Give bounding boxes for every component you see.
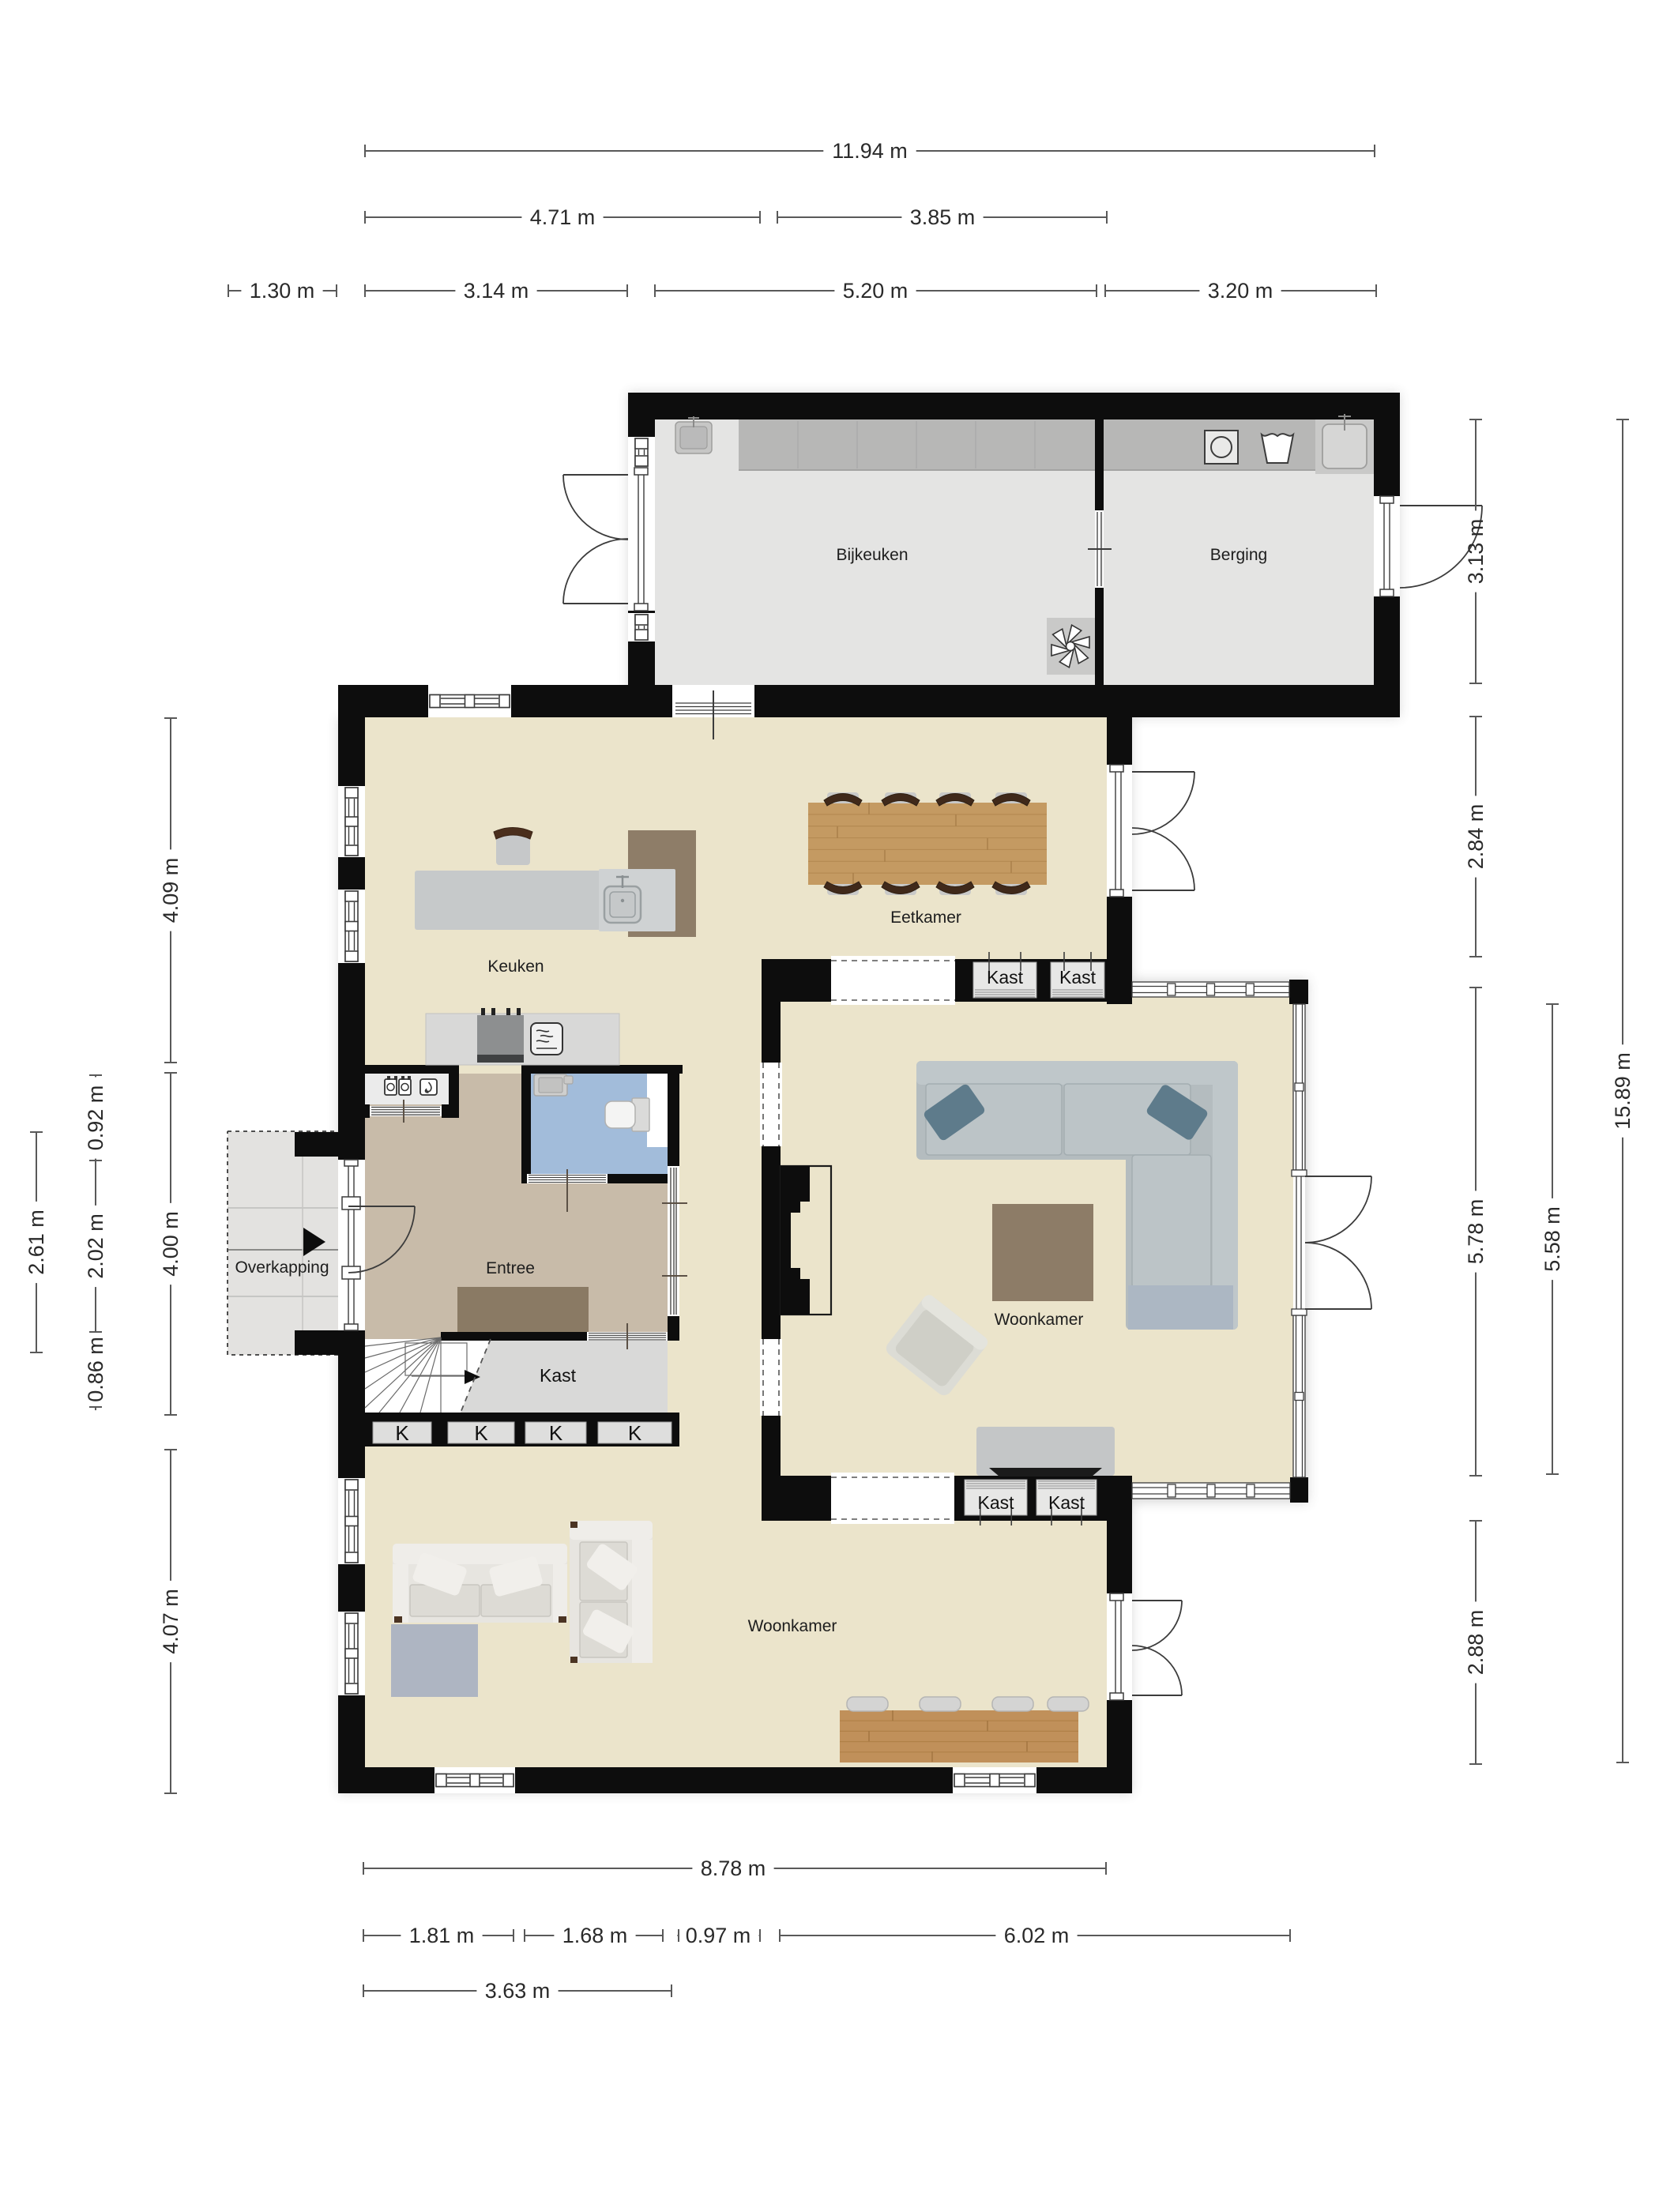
svg-text:3.20 m: 3.20 m xyxy=(1208,279,1273,303)
svg-text:2.61 m: 2.61 m xyxy=(24,1209,48,1275)
svg-text:Bijkeuken: Bijkeuken xyxy=(836,546,908,564)
svg-text:4.09 m: 4.09 m xyxy=(159,858,182,924)
svg-text:11.94 m: 11.94 m xyxy=(832,139,908,163)
svg-text:Overkapping: Overkapping xyxy=(235,1258,329,1277)
svg-text:5.58 m: 5.58 m xyxy=(1540,1206,1564,1272)
svg-text:5.78 m: 5.78 m xyxy=(1464,1199,1488,1265)
svg-text:3.14 m: 3.14 m xyxy=(464,279,529,303)
svg-text:1.68 m: 1.68 m xyxy=(562,1924,628,1947)
svg-text:2.02 m: 2.02 m xyxy=(84,1213,107,1279)
svg-text:Eetkamer: Eetkamer xyxy=(890,908,961,927)
svg-text:Kast: Kast xyxy=(1048,1492,1085,1513)
svg-text:4.07 m: 4.07 m xyxy=(159,1589,182,1654)
svg-text:8.78 m: 8.78 m xyxy=(701,1856,766,1880)
svg-text:Keuken: Keuken xyxy=(487,957,544,976)
svg-text:K: K xyxy=(395,1421,409,1445)
svg-text:3.63 m: 3.63 m xyxy=(485,1979,551,2003)
svg-text:K: K xyxy=(628,1421,642,1445)
svg-text:0.92 m: 0.92 m xyxy=(84,1085,107,1151)
svg-text:4.00 m: 4.00 m xyxy=(159,1211,182,1277)
svg-text:15.89 m: 15.89 m xyxy=(1611,1052,1635,1130)
svg-text:Kast: Kast xyxy=(977,1492,1014,1513)
svg-text:Woonkamer: Woonkamer xyxy=(995,1311,1084,1329)
svg-text:4.71 m: 4.71 m xyxy=(530,205,596,229)
svg-text:0.97 m: 0.97 m xyxy=(686,1924,751,1947)
svg-text:0.86 m: 0.86 m xyxy=(84,1337,107,1402)
svg-text:1.30 m: 1.30 m xyxy=(250,279,315,303)
svg-text:Kast: Kast xyxy=(1059,967,1097,987)
svg-text:Entree: Entree xyxy=(486,1259,535,1277)
svg-text:Kast: Kast xyxy=(987,967,1024,987)
svg-text:2.88 m: 2.88 m xyxy=(1464,1610,1488,1676)
svg-text:3.13 m: 3.13 m xyxy=(1464,519,1488,585)
svg-text:Berging: Berging xyxy=(1210,546,1267,564)
svg-text:5.20 m: 5.20 m xyxy=(843,279,908,303)
svg-text:1.81 m: 1.81 m xyxy=(409,1924,475,1947)
svg-text:Woonkamer: Woonkamer xyxy=(748,1617,837,1635)
svg-text:6.02 m: 6.02 m xyxy=(1004,1924,1070,1947)
svg-text:3.85 m: 3.85 m xyxy=(910,205,976,229)
svg-text:K: K xyxy=(549,1421,563,1445)
svg-text:K: K xyxy=(474,1421,488,1445)
svg-text:Kast: Kast xyxy=(540,1365,577,1386)
svg-text:2.84 m: 2.84 m xyxy=(1464,804,1488,870)
